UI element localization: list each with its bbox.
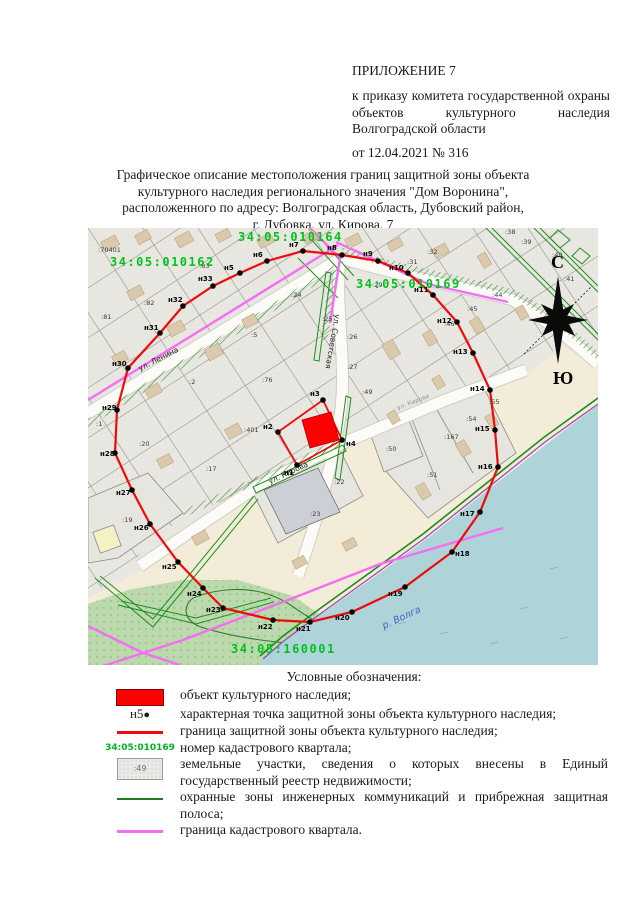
title-line: Графическое описание местоположения гран…: [50, 167, 596, 184]
parcel-number-label: :40: [552, 251, 562, 259]
boundary-point-marker: [477, 509, 483, 515]
legend-row-comm-line: охранные зоны инженерных коммуникаций и …: [100, 789, 608, 822]
parcel-number-label: :23: [310, 510, 320, 518]
boundary-point-label: н15: [475, 425, 490, 433]
boundary-point-label: н10: [389, 264, 404, 272]
legend-swatch-quarter-number: 34:05:010169: [105, 740, 175, 757]
parcel-number-label: :39: [521, 238, 531, 246]
boundary-point-marker: [430, 292, 436, 298]
legend-swatch-zone-line: [117, 731, 163, 734]
boundary-point-label: н21: [296, 625, 311, 633]
parcel-number-label: :54: [466, 415, 476, 423]
legend-item-text: охранные зоны инженерных коммуникаций и …: [180, 789, 608, 822]
boundary-point-label: н27: [116, 489, 131, 497]
boundary-point-marker: [339, 437, 345, 443]
boundary-point-label: н9: [363, 250, 373, 258]
object-swatch: [100, 687, 180, 706]
legend-item-text: земельные участки, сведения о которых вн…: [180, 756, 608, 789]
boundary-point-label: н29: [102, 404, 117, 412]
legend-row-parcel: :49земельные участки, сведения о которых…: [100, 756, 608, 789]
boundary-point-label: н20: [335, 614, 350, 622]
parcel-number-label: :5: [251, 331, 257, 339]
boundary-point-label: н7: [289, 241, 299, 249]
boundary-point-marker: [375, 258, 381, 264]
parcel-number-label: :49: [362, 388, 372, 396]
cadastral-quarter-label: 34:05:160001: [231, 642, 336, 656]
boundary-point-label: н6: [253, 251, 263, 259]
boundary-point-marker: [320, 397, 326, 403]
quarter-line-swatch: [100, 822, 180, 833]
order-date-line: от 12.04.2021 № 316: [352, 145, 610, 162]
legend-swatch-quarter-line: [117, 830, 163, 833]
boundary-point-label: н32: [168, 296, 183, 304]
legend-swatch-parcel: :49: [117, 758, 163, 780]
boundary-point-marker: [454, 319, 460, 325]
boundary-point-label: н18: [455, 550, 470, 558]
boundary-point-label: н23: [206, 606, 221, 614]
legend: Условные обозначения: объект культурного…: [100, 669, 608, 839]
boundary-point-marker: [275, 429, 281, 435]
boundary-point-label: н19: [388, 590, 403, 598]
legend-item-text: характерная точка защитной зоны объекта …: [180, 706, 608, 723]
boundary-point-label: н1: [284, 469, 294, 477]
parcel-number-label: :17: [206, 465, 216, 473]
boundary-point-label: н16: [478, 463, 493, 471]
parcel-number-label: :2: [189, 378, 195, 386]
boundary-point-marker: [349, 609, 355, 615]
boundary-point-marker: [449, 549, 455, 555]
document-title: Графическое описание местоположения гран…: [50, 167, 596, 233]
quarter-number-swatch: 34:05:010169: [100, 740, 180, 757]
parcel-number-label: :41: [564, 275, 574, 283]
zone-line-swatch: [100, 723, 180, 734]
parcel-number-label: :76: [262, 376, 272, 384]
point-dot-icon: ●: [143, 709, 150, 721]
legend-title: Условные обозначения:: [100, 669, 608, 686]
boundary-point-marker: [307, 619, 313, 625]
boundary-point-label: н17: [460, 510, 475, 518]
boundary-point-label: н22: [258, 623, 273, 631]
comm-line-swatch: [100, 789, 180, 800]
parcel-number-label: :45: [467, 305, 477, 313]
boundary-point-marker: [270, 617, 276, 623]
legend-row-zone-line: граница защитной зоны объекта культурног…: [100, 723, 608, 740]
appendix-heading: ПРИЛОЖЕНИЕ 7: [352, 63, 610, 80]
parcel-number-label: :26: [347, 333, 357, 341]
boundary-point-label: н24: [187, 590, 202, 598]
boundary-point-marker: [405, 270, 411, 276]
parcel-number-label: :32: [427, 248, 437, 256]
legend-item-text: номер кадастрового квартала;: [180, 740, 608, 757]
boundary-point-label: н12: [437, 317, 452, 325]
parcel-number-label: :25: [322, 315, 332, 323]
boundary-point-label: н28: [100, 450, 115, 458]
boundary-point-marker: [180, 303, 186, 309]
boundary-point-label: н5: [224, 264, 234, 272]
boundary-point-marker: [300, 248, 306, 254]
cadastral-map-drawing: С Ю р. Волга :70401:83:82:81:1:2:5:76:20…: [88, 228, 598, 665]
parcel-number-label: :81: [101, 313, 111, 321]
boundary-point-marker: [470, 350, 476, 356]
point-swatch: н5●: [100, 706, 180, 724]
parcel-number-label: :20: [139, 440, 149, 448]
parcel-number-label: :70401: [98, 246, 121, 254]
legend-rows: объект культурного наследия;н5●характерн…: [100, 687, 608, 839]
parcel-number-label: :44: [492, 291, 502, 299]
boundary-point-label: н2: [263, 423, 273, 431]
boundary-point-label: н13: [453, 348, 468, 356]
parcel-number-label: :401: [244, 426, 259, 434]
parcel-number-label: :82: [144, 299, 154, 307]
parcel-number-label: :167: [444, 433, 459, 441]
legend-item-text: граница кадастрового квартала.: [180, 822, 608, 839]
order-reference-text: к приказу комитета государственной охран…: [352, 88, 610, 138]
boundary-point-marker: [237, 270, 243, 276]
boundary-point-label: н31: [144, 324, 159, 332]
parcel-number-label: :1: [96, 420, 102, 428]
compass-south-label: Ю: [553, 368, 573, 388]
boundary-point-label: н25: [162, 563, 177, 571]
boundary-point-label: н4: [346, 440, 356, 448]
boundary-point-label: н26: [134, 524, 149, 532]
parcel-number-label: :27: [347, 363, 357, 371]
parcel-number-label: :38: [505, 228, 515, 236]
parcel-number-label: :19: [122, 516, 132, 524]
legend-item-text: граница защитной зоны объекта культурног…: [180, 723, 608, 740]
legend-row-quarter-number: 34:05:010169номер кадастрового квартала;: [100, 740, 608, 757]
boundary-point-label: н8: [327, 244, 337, 252]
boundary-point-label: н30: [112, 360, 127, 368]
boundary-point-marker: [492, 427, 498, 433]
boundary-point-marker: [495, 464, 501, 470]
legend-row-object: объект культурного наследия;: [100, 687, 608, 706]
boundary-point-label: н3: [310, 390, 320, 398]
parcel-number-label: :50: [386, 445, 396, 453]
parcel-number-label: :22: [334, 478, 344, 486]
boundary-point-marker: [220, 605, 226, 611]
boundary-point-label: н11: [414, 286, 429, 294]
cadastral-map: С Ю р. Волга :70401:83:82:81:1:2:5:76:20…: [88, 228, 598, 665]
parcel-number-label: :55: [489, 398, 499, 406]
parcel-number-label: :51: [427, 471, 437, 479]
legend-row-quarter-line: граница кадастрового квартала.: [100, 822, 608, 839]
boundary-point-label: н33: [198, 275, 213, 283]
legend-swatch-point: н5●: [130, 706, 150, 724]
cadastral-quarter-label: 34:05:010169: [356, 277, 461, 291]
boundary-point-marker: [487, 387, 493, 393]
boundary-point-label: н14: [470, 385, 485, 393]
legend-swatch-object: [116, 689, 164, 706]
cadastral-quarter-label: 34:05:010162: [110, 255, 215, 269]
title-line: культурного наследия регионального значе…: [50, 184, 596, 201]
legend-item-text: объект культурного наследия;: [180, 687, 608, 704]
boundary-point-marker: [210, 283, 216, 289]
parcel-number-label: :31: [407, 258, 417, 266]
boundary-point-marker: [402, 584, 408, 590]
parcel-swatch: :49: [100, 756, 180, 780]
parcel-number-label: :24: [291, 291, 301, 299]
legend-swatch-comm-line: [117, 798, 163, 800]
title-line: расположенного по адресу: Волгоградская …: [50, 200, 596, 217]
boundary-point-marker: [294, 462, 300, 468]
boundary-point-marker: [339, 252, 345, 258]
document-page: ПРИЛОЖЕНИЕ 7 к приказу комитета государс…: [0, 0, 640, 905]
legend-row-point: н5●характерная точка защитной зоны объек…: [100, 706, 608, 724]
boundary-point-marker: [264, 258, 270, 264]
